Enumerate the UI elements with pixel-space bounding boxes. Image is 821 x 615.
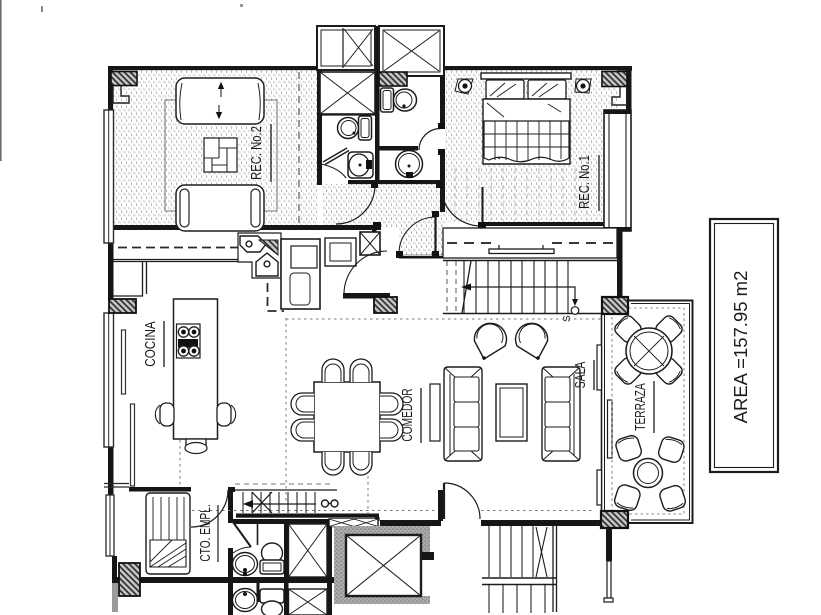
svg-text:CTO. EMPL.: CTO. EMPL. xyxy=(197,504,213,561)
svg-text:TERRAZA: TERRAZA xyxy=(631,383,649,431)
svg-text:COMEDOR: COMEDOR xyxy=(398,388,416,441)
svg-text:COCINA: COCINA xyxy=(142,321,159,366)
svg-text:AREA =157.95 m2: AREA =157.95 m2 xyxy=(730,271,751,424)
svg-text:SALA: SALA xyxy=(571,361,588,388)
svg-text:REC. No.2: REC. No.2 xyxy=(247,126,264,180)
svg-text:REC. No.1: REC. No.1 xyxy=(575,155,592,209)
